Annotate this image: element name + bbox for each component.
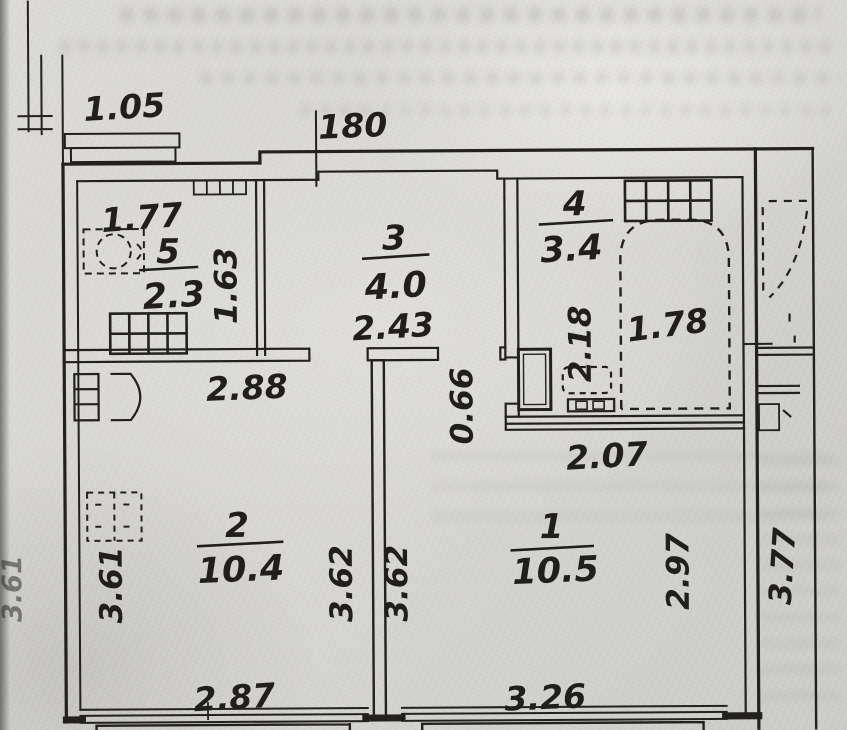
- vent-shaft-room5-icon: [110, 313, 187, 354]
- room2-number: 2: [225, 506, 249, 546]
- dim-room1-depth-right: 2.97: [660, 533, 696, 610]
- furniture-dashed-room2-icon: [87, 492, 142, 541]
- duct-box-bathroom-icon: [518, 349, 551, 409]
- dim-room1-window-width: 3.26: [504, 676, 587, 718]
- outer-right-inner-line: [742, 177, 745, 716]
- room3-number: 3: [382, 219, 406, 259]
- fixtures: [73, 177, 815, 541]
- outer-left-inner-line: [77, 181, 80, 710]
- bathroom-bottom-wall: [506, 415, 744, 430]
- room5-right-wall: [256, 180, 265, 355]
- site-boundary-right: [813, 149, 817, 730]
- dim-room2-depth-right: 3.62: [324, 545, 360, 622]
- stair-landing-walls: [757, 348, 815, 431]
- floor-plan-drawing: 1.05 180 1.77 1.63 5 2.3 3 4.0 2.43 4 3.…: [0, 0, 847, 730]
- partition-room1-room2: [372, 360, 386, 718]
- room2-window-sill: [97, 724, 350, 730]
- dim-room2-width-top: 2.88: [205, 367, 288, 409]
- dim-room5-depth: 1.63: [208, 247, 244, 324]
- vent-shaft-bathroom-icon: [625, 180, 712, 221]
- room5-number: 5: [156, 232, 180, 272]
- dim-bath-depth: 2.18: [562, 305, 598, 382]
- bathroom-left-wall: [504, 178, 519, 416]
- room2-area: 10.4: [197, 547, 285, 592]
- dim-outer-left-depth: 3.61: [0, 555, 29, 622]
- outer-right-wall: [755, 149, 759, 730]
- site-lines-top-left: [18, 0, 63, 164]
- dim-bath-width: 2.07: [565, 434, 649, 478]
- dim-room2-window-width: 2.87: [193, 676, 277, 720]
- room4-area: 3.4: [539, 227, 604, 272]
- toilet-bowl-detail: [576, 401, 604, 409]
- outer-top-inner-line: [77, 169, 742, 181]
- dim-outer-right-depth: 3.77: [763, 526, 804, 605]
- toilet-bowl: [568, 399, 614, 411]
- balcony-ledge: [65, 133, 180, 162]
- dim-ledge-width: 1.05: [82, 85, 166, 129]
- dim-top-opening: 180: [317, 105, 388, 147]
- room4-number: 4: [562, 184, 587, 224]
- vent-grille-room5-top-icon: [194, 180, 246, 194]
- dim-hall-width: 2.43: [351, 305, 435, 349]
- room1-area: 10.5: [511, 549, 599, 594]
- room1-window-sill: [422, 722, 703, 730]
- entrance-door-dashed-icon: [763, 201, 808, 343]
- dim-bath-inner-width: 1.78: [625, 300, 711, 349]
- dim-room1-depth-left: 3.62: [379, 545, 415, 622]
- outer-left-wall: [63, 164, 66, 722]
- dim-step-depth: 0.66: [444, 367, 480, 444]
- room3-area: 4.0: [363, 264, 429, 309]
- room1-number: 1: [540, 507, 564, 547]
- room5-area: 2.3: [141, 273, 206, 318]
- dim-room2-depth-left: 3.61: [94, 546, 130, 623]
- radiator-room2-icon: [74, 374, 140, 421]
- floor-plan-photo: 1.05 180 1.77 1.63 5 2.3 3 4.0 2.43 4 3.…: [0, 0, 847, 730]
